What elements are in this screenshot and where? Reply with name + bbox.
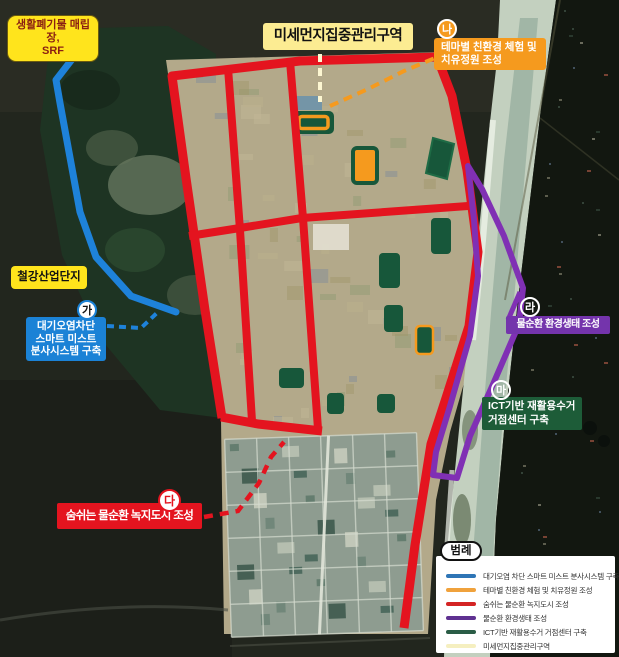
legend-swatch-purple [446, 616, 476, 620]
legend-label: 숨쉬는 물순환 녹지도시 조성 [483, 599, 569, 610]
zone-title-label: 미세먼지집중관리구역 [263, 23, 413, 50]
legend-row: 테마별 친환경 체험 및 치유정원 조성 [446, 583, 609, 597]
project-ga-label: 대기오염차단 스마트 미스트 분사시스템 구축 [26, 317, 106, 361]
legend-label: 대기오염 차단 스마트 미스트 분사시스템 구축 [483, 571, 619, 582]
legend-row: 물순환 환경생태 조성 [446, 611, 609, 625]
project-ra-label: 물순환 환경생태 조성 [506, 316, 610, 334]
landfill-label-line1: 생활폐기물 매립장, [10, 19, 96, 45]
steel-complex-label: 철강산업단지 [11, 266, 87, 289]
site-rect [377, 394, 395, 413]
badge-na: 나 [437, 19, 457, 39]
project-ga-line2: 스마트 미스트 [26, 333, 106, 346]
project-da-label: 숨쉬는 물순환 녹지도시 조성 [57, 503, 202, 529]
badge-da: 다 [158, 489, 181, 512]
project-na-line2: 치유정원 조성 [441, 54, 542, 67]
legend-row: 대기오염 차단 스마트 미스트 분사시스템 구축 [446, 569, 609, 583]
legend-label: 미세먼지집중관리구역 [483, 641, 550, 652]
site-rect [384, 305, 403, 332]
project-ga-line1: 대기오염차단 [26, 320, 106, 333]
site-rect [379, 253, 400, 288]
badge-ma: 마 [491, 380, 511, 400]
site-rect [279, 368, 304, 388]
legend-label: 테마별 친환경 체험 및 치유정원 조성 [483, 585, 592, 596]
project-na-label: 테마별 친환경 체험 및 치유정원 조성 [434, 38, 546, 70]
legend-row: 숨쉬는 물순환 녹지도시 조성 [446, 597, 609, 611]
legend-swatch-orange [446, 588, 476, 592]
project-ma-line1: ICT기반 재활용수거 [488, 400, 576, 414]
site-rect [327, 393, 344, 414]
map-screenshot: 생활폐기물 매립장, SRF 미세먼지집중관리구역 철강산업단지 가 대기오염차… [0, 0, 619, 657]
project-na-line1: 테마별 친환경 체험 및 [441, 41, 542, 54]
legend-swatch-red [446, 602, 476, 606]
legend-label: ICT기반 재활용수거 거점센터 구축 [483, 627, 587, 638]
legend-swatch-paleyellow [446, 644, 476, 648]
legend-row: 미세먼지집중관리구역 [446, 639, 609, 653]
legend-panel: 대기오염 차단 스마트 미스트 분사시스템 구축 테마별 친환경 체험 및 치유… [436, 556, 615, 653]
legend-swatch-blue [446, 574, 476, 578]
landfill-label: 생활폐기물 매립장, SRF [7, 15, 99, 62]
lower-city-grid-area [225, 433, 424, 638]
badge-ga: 가 [77, 300, 97, 320]
legend-row: ICT기반 재활용수거 거점센터 구축 [446, 625, 609, 639]
site-rect-orange-fill [353, 148, 377, 183]
landfill-label-line2: SRF [10, 45, 96, 58]
project-ma-line2: 거점센터 구축 [488, 414, 576, 428]
legend-label: 물순환 환경생태 조성 [483, 613, 547, 624]
badge-ra: 라 [520, 297, 540, 317]
legend-title: 범례 [440, 541, 482, 561]
site-rect [431, 218, 451, 254]
project-ma-label: ICT기반 재활용수거 거점센터 구축 [482, 397, 582, 430]
project-ga-line3: 분사시스템 구축 [26, 345, 106, 358]
legend-swatch-green [446, 630, 476, 634]
site-rect-orange-ring [416, 326, 433, 354]
